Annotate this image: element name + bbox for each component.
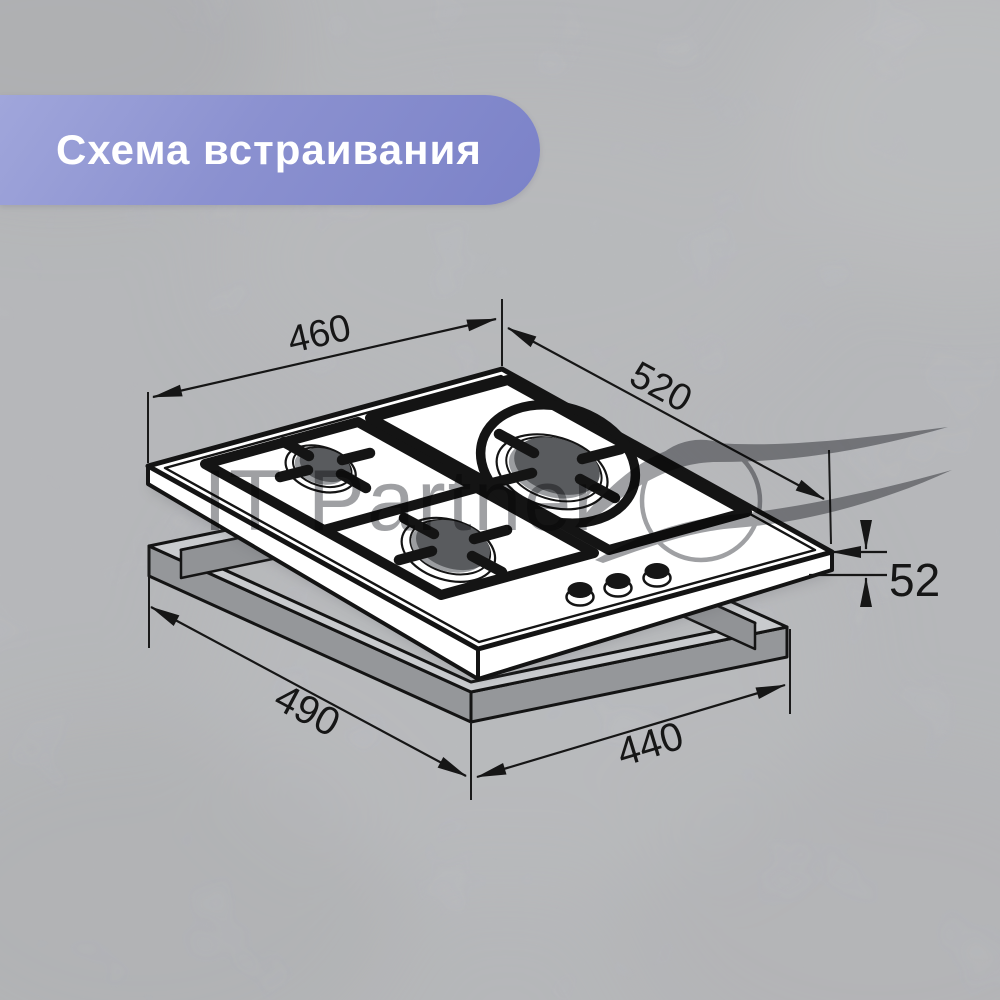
dimension-label-hob-height: 52 xyxy=(889,554,940,606)
control-knob-1 xyxy=(567,582,594,606)
control-knob-2 xyxy=(605,573,632,597)
page-title: Схема встраивания xyxy=(56,126,482,174)
watermark-text: IT Partner xyxy=(203,453,604,549)
product-image-card: 460 520 52 490 440 IT Partner Схема встр… xyxy=(0,0,1000,1000)
section-title-banner: Схема встраивания xyxy=(0,95,540,205)
control-knob-3 xyxy=(644,563,671,587)
